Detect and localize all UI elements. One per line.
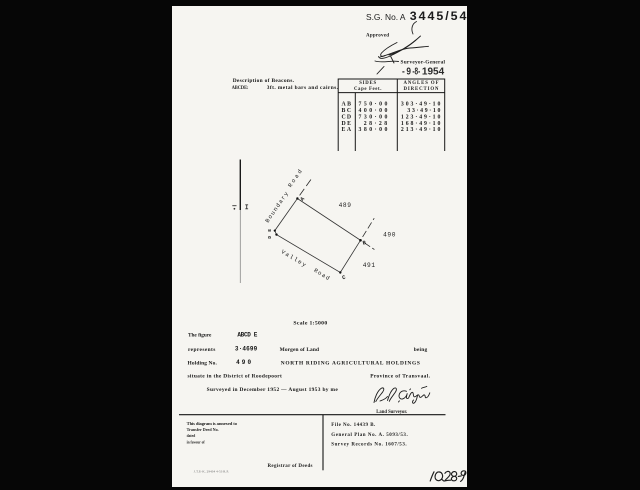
- svg-text:213·49·10: 213·49·10: [401, 127, 441, 133]
- svg-text:being: being: [414, 347, 428, 353]
- svg-text:S.G. No. A: S.G. No. A: [366, 13, 406, 22]
- svg-text:-8-: -8-: [412, 67, 420, 78]
- svg-text:1954: 1954: [422, 67, 445, 78]
- svg-text:D: D: [268, 236, 273, 239]
- svg-text:General Plan No. A. 5093/53.: General Plan No. A. 5093/53.: [331, 433, 408, 438]
- svg-text:Holding No.: Holding No.: [188, 360, 218, 366]
- svg-text:dated: dated: [187, 433, 196, 438]
- svg-text:Description of Beacons.: Description of Beacons.: [233, 78, 295, 84]
- svg-text:ABCDE:: ABCDE:: [232, 85, 249, 91]
- svg-text:Province of Transvaal.: Province of Transvaal.: [370, 374, 430, 380]
- svg-text:The figure: The figure: [188, 333, 212, 339]
- svg-text:BC: BC: [342, 108, 352, 114]
- svg-text:Survey Records No. 1607/53.: Survey Records No. 1607/53.: [331, 442, 407, 447]
- svg-text:3ft. metal bars and cairns.: 3ft. metal bars and cairns.: [267, 85, 339, 91]
- svg-text:490: 490: [236, 359, 251, 366]
- svg-text:ABCD E: ABCD E: [237, 332, 257, 339]
- svg-text:EA: EA: [342, 127, 352, 133]
- svg-text:situate in the District of Roo: situate in the District of Roodepoort: [188, 374, 283, 380]
- svg-text:Transfer Deed No.: Transfer Deed No.: [187, 427, 219, 432]
- svg-text:33·49·10: 33·49·10: [407, 108, 440, 114]
- svg-text:DE: DE: [342, 121, 352, 127]
- svg-text:Surveyed in December 1952 — Au: Surveyed in December 1952 — August 1953 …: [207, 387, 339, 393]
- svg-text:3·4699: 3·4699: [235, 346, 258, 353]
- svg-text:DIRECTION: DIRECTION: [404, 87, 440, 92]
- svg-text:9: 9: [406, 67, 411, 78]
- svg-text:Approved: Approved: [366, 34, 389, 39]
- svg-text:Surveyor-General: Surveyor-General: [401, 59, 446, 65]
- svg-text:ANGLES OF: ANGLES OF: [404, 81, 439, 86]
- svg-text:in favour of: in favour of: [187, 439, 205, 444]
- svg-text:123·49·10: 123·49·10: [401, 114, 441, 120]
- svg-text:NORTH RIDING AGRICULTURAL H: NORTH RIDING AGRICULTURAL HOLDINGS: [281, 360, 420, 366]
- svg-text:AB: AB: [342, 102, 352, 108]
- svg-text:Cape Feet.: Cape Feet.: [354, 87, 382, 92]
- svg-text:Registrar of Deeds: Registrar of Deeds: [268, 464, 313, 469]
- svg-text:E: E: [268, 229, 273, 232]
- svg-text:491: 491: [363, 262, 376, 269]
- svg-text:490: 490: [383, 232, 396, 239]
- svg-text:This diagram is annexed to: This diagram is annexed to: [187, 421, 238, 426]
- svg-text:303·49·10: 303·49·10: [401, 102, 441, 108]
- svg-text:Morgen of Land: Morgen of Land: [280, 347, 319, 353]
- svg-text:represents: represents: [188, 347, 215, 353]
- svg-text:Scale 1:5000: Scale 1:5000: [293, 321, 327, 327]
- svg-text:J.T.P.-K. 29434 4-53 R.P.: J.T.P.-K. 29434 4-53 R.P.: [194, 469, 229, 473]
- svg-text:File No. 14439 B.: File No. 14439 B.: [331, 423, 376, 428]
- svg-text:489: 489: [339, 202, 352, 209]
- svg-text:168·49·10: 168·49·10: [401, 121, 441, 127]
- svg-text:CD: CD: [342, 114, 352, 120]
- svg-text:-: -: [402, 67, 405, 78]
- svg-text:SIDES: SIDES: [359, 81, 376, 86]
